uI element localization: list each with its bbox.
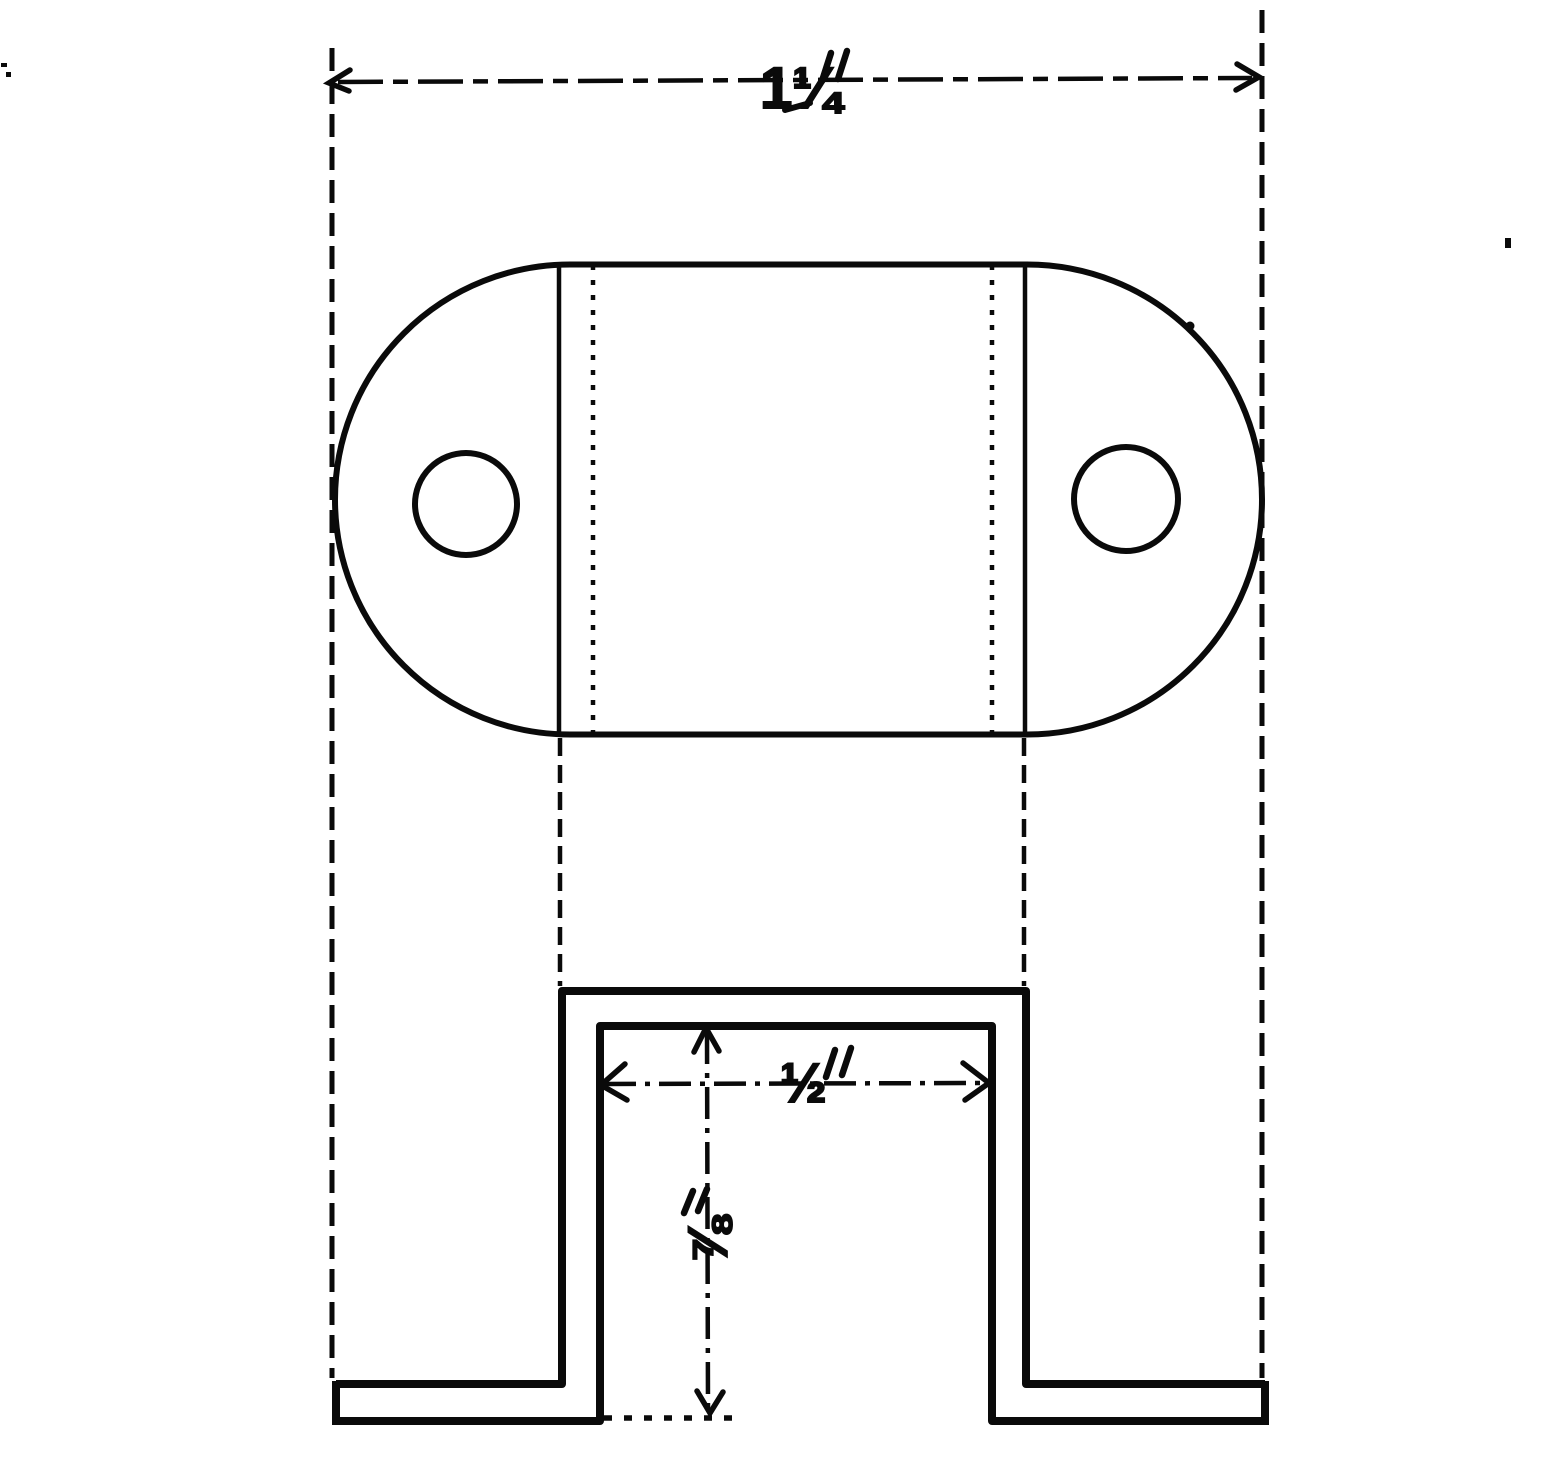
svg-text:½: ½ — [780, 1051, 827, 1114]
svg-text:⅞: ⅞ — [676, 1214, 739, 1264]
svg-text:1¼: 1¼ — [760, 56, 845, 121]
